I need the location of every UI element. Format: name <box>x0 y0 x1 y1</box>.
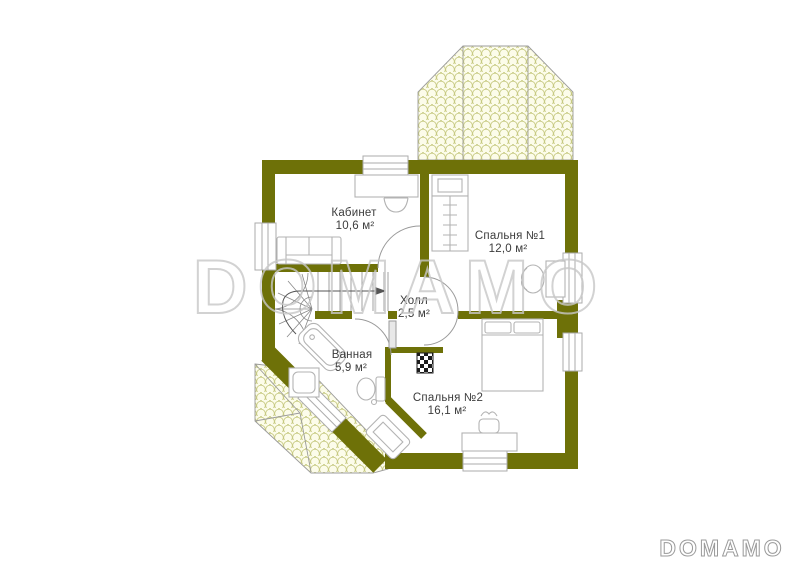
office-desk <box>355 175 418 197</box>
window-right-bedroom2 <box>563 333 582 371</box>
bedroom2-stool <box>479 412 499 433</box>
toilet <box>357 377 385 405</box>
chimney-flue <box>417 353 433 373</box>
room-label-bathroom: Ванная <box>332 349 373 361</box>
room-area-office: 10,6 м² <box>336 220 375 232</box>
bay-roof-top <box>418 46 573 160</box>
room-label-office: Кабинет <box>331 207 377 219</box>
watermark-text: DOMAMO <box>193 245 608 330</box>
wall-outer-top <box>262 160 578 174</box>
floor-plan-canvas: Кабинет 10,6 м² Спальня №1 12,0 м² Холл … <box>0 0 800 566</box>
office-chair <box>384 198 408 212</box>
floor-plan-page: Кабинет 10,6 м² Спальня №1 12,0 м² Холл … <box>0 0 800 566</box>
room-area-bedroom2: 16,1 м² <box>428 405 467 417</box>
window-top-office <box>363 156 408 176</box>
room-label-bedroom1: Спальня №1 <box>475 230 545 242</box>
room-area-bathroom: 5,9 м² <box>335 362 367 374</box>
wall-bath-east <box>385 347 391 402</box>
room-label-bedroom2: Спальня №2 <box>413 392 483 404</box>
bedroom1-wardrobe <box>432 175 468 251</box>
bedroom2-dresser <box>462 433 517 451</box>
brand-logo: DOMAMO <box>659 535 784 561</box>
window-bottom-bedroom2 <box>463 451 507 471</box>
washbasin <box>289 368 319 397</box>
